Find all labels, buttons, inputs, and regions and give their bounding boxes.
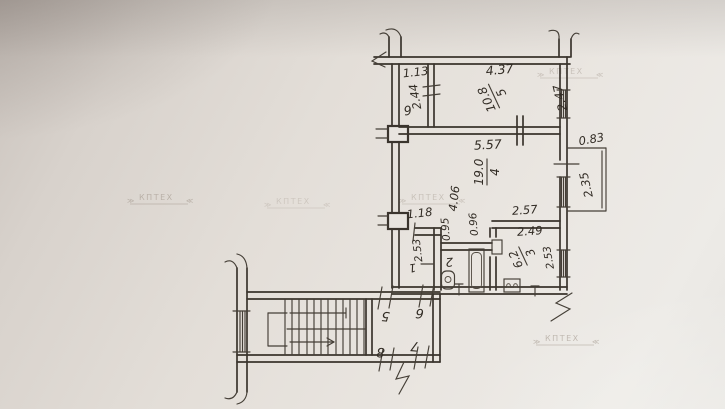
balcony-length-label: 2.35 — [576, 171, 595, 199]
stair-direction-arrow-icon — [290, 338, 334, 346]
hall-width-label: 1.18 — [406, 205, 433, 222]
watermark: ≫ КПТЕХ ≪ — [127, 193, 193, 205]
doorway-ticks — [378, 284, 434, 371]
room4-width-label: 5.57 — [473, 136, 502, 152]
watermark-text: КПТЕХ — [139, 193, 174, 202]
wet-zone-width-a-label: 0.95 — [439, 217, 453, 242]
wall-break-icon — [396, 362, 409, 394]
room3-area-label: 6.2 — [506, 248, 526, 270]
staircase — [268, 300, 366, 355]
floor-plan-svg: ≫ КПТЕХ ≪ ≫ КПТЕХ ≪ ≫ КПТЕХ ≪ ≫ КПТЕХ ≪ … — [0, 0, 725, 409]
room3-side-dim-label: 2.53 — [541, 245, 557, 270]
watermark: ≫ КПТЕХ ≪ — [537, 67, 603, 79]
watermark-text: КПТЕХ — [276, 197, 311, 206]
room6-number-label: 6 — [403, 102, 413, 118]
bathtub-icon — [472, 253, 482, 289]
room1-number-label: 1 — [408, 261, 417, 276]
room4-depth-label: 4.06 — [446, 185, 463, 212]
room5-width-label: 4.37 — [485, 61, 514, 78]
landing-mark-6: 6 — [415, 305, 425, 321]
watermark: ≫ КПТЕХ ≪ — [264, 197, 330, 209]
room3-area-fraction: 6.2 3 — [505, 241, 541, 272]
room3-inner-dim-label: 2.49 — [516, 223, 543, 239]
room4-area-fraction: 19.0 4 — [472, 158, 502, 185]
landing-mark-8: 8 — [376, 344, 386, 360]
watermark-text: КПТЕХ — [411, 193, 446, 202]
room5-area-fraction: 10.8 5 — [475, 77, 514, 114]
room1-length-label: 2.53 — [411, 238, 426, 263]
door-leaf — [492, 240, 502, 254]
balcony-depth-label: 0.83 — [577, 130, 605, 148]
room5-number-label: 5 — [493, 86, 509, 99]
watermark: ≫ КПТЕХ ≪ — [533, 334, 599, 346]
landing-mark-5: 5 — [381, 308, 391, 324]
room2-number-label: 2 — [445, 255, 454, 270]
room6-width-label: 1.13 — [402, 64, 429, 81]
landing-mark-7: 7 — [409, 338, 419, 354]
wall-pier — [388, 213, 408, 229]
dimension-labels: 1.13 2.44 6 4.37 2.47 10.8 5 5.57 19.0 4… — [376, 61, 605, 359]
room4-number-label: 4 — [488, 168, 502, 176]
watermark-text: КПТЕХ — [545, 334, 580, 343]
stove-icon — [504, 279, 520, 292]
wall-break-icon — [551, 293, 572, 321]
floor-plan-photo: ≫ КПТЕХ ≪ ≫ КПТЕХ ≪ ≫ КПТЕХ ≪ ≫ КПТЕХ ≪ … — [0, 0, 725, 409]
room3-top-dim-label: 2.57 — [511, 202, 538, 218]
wet-zone-width-b-label: 0.96 — [467, 212, 481, 237]
room3-number-label: 3 — [522, 246, 538, 259]
room4-area-label: 19.0 — [472, 158, 486, 185]
